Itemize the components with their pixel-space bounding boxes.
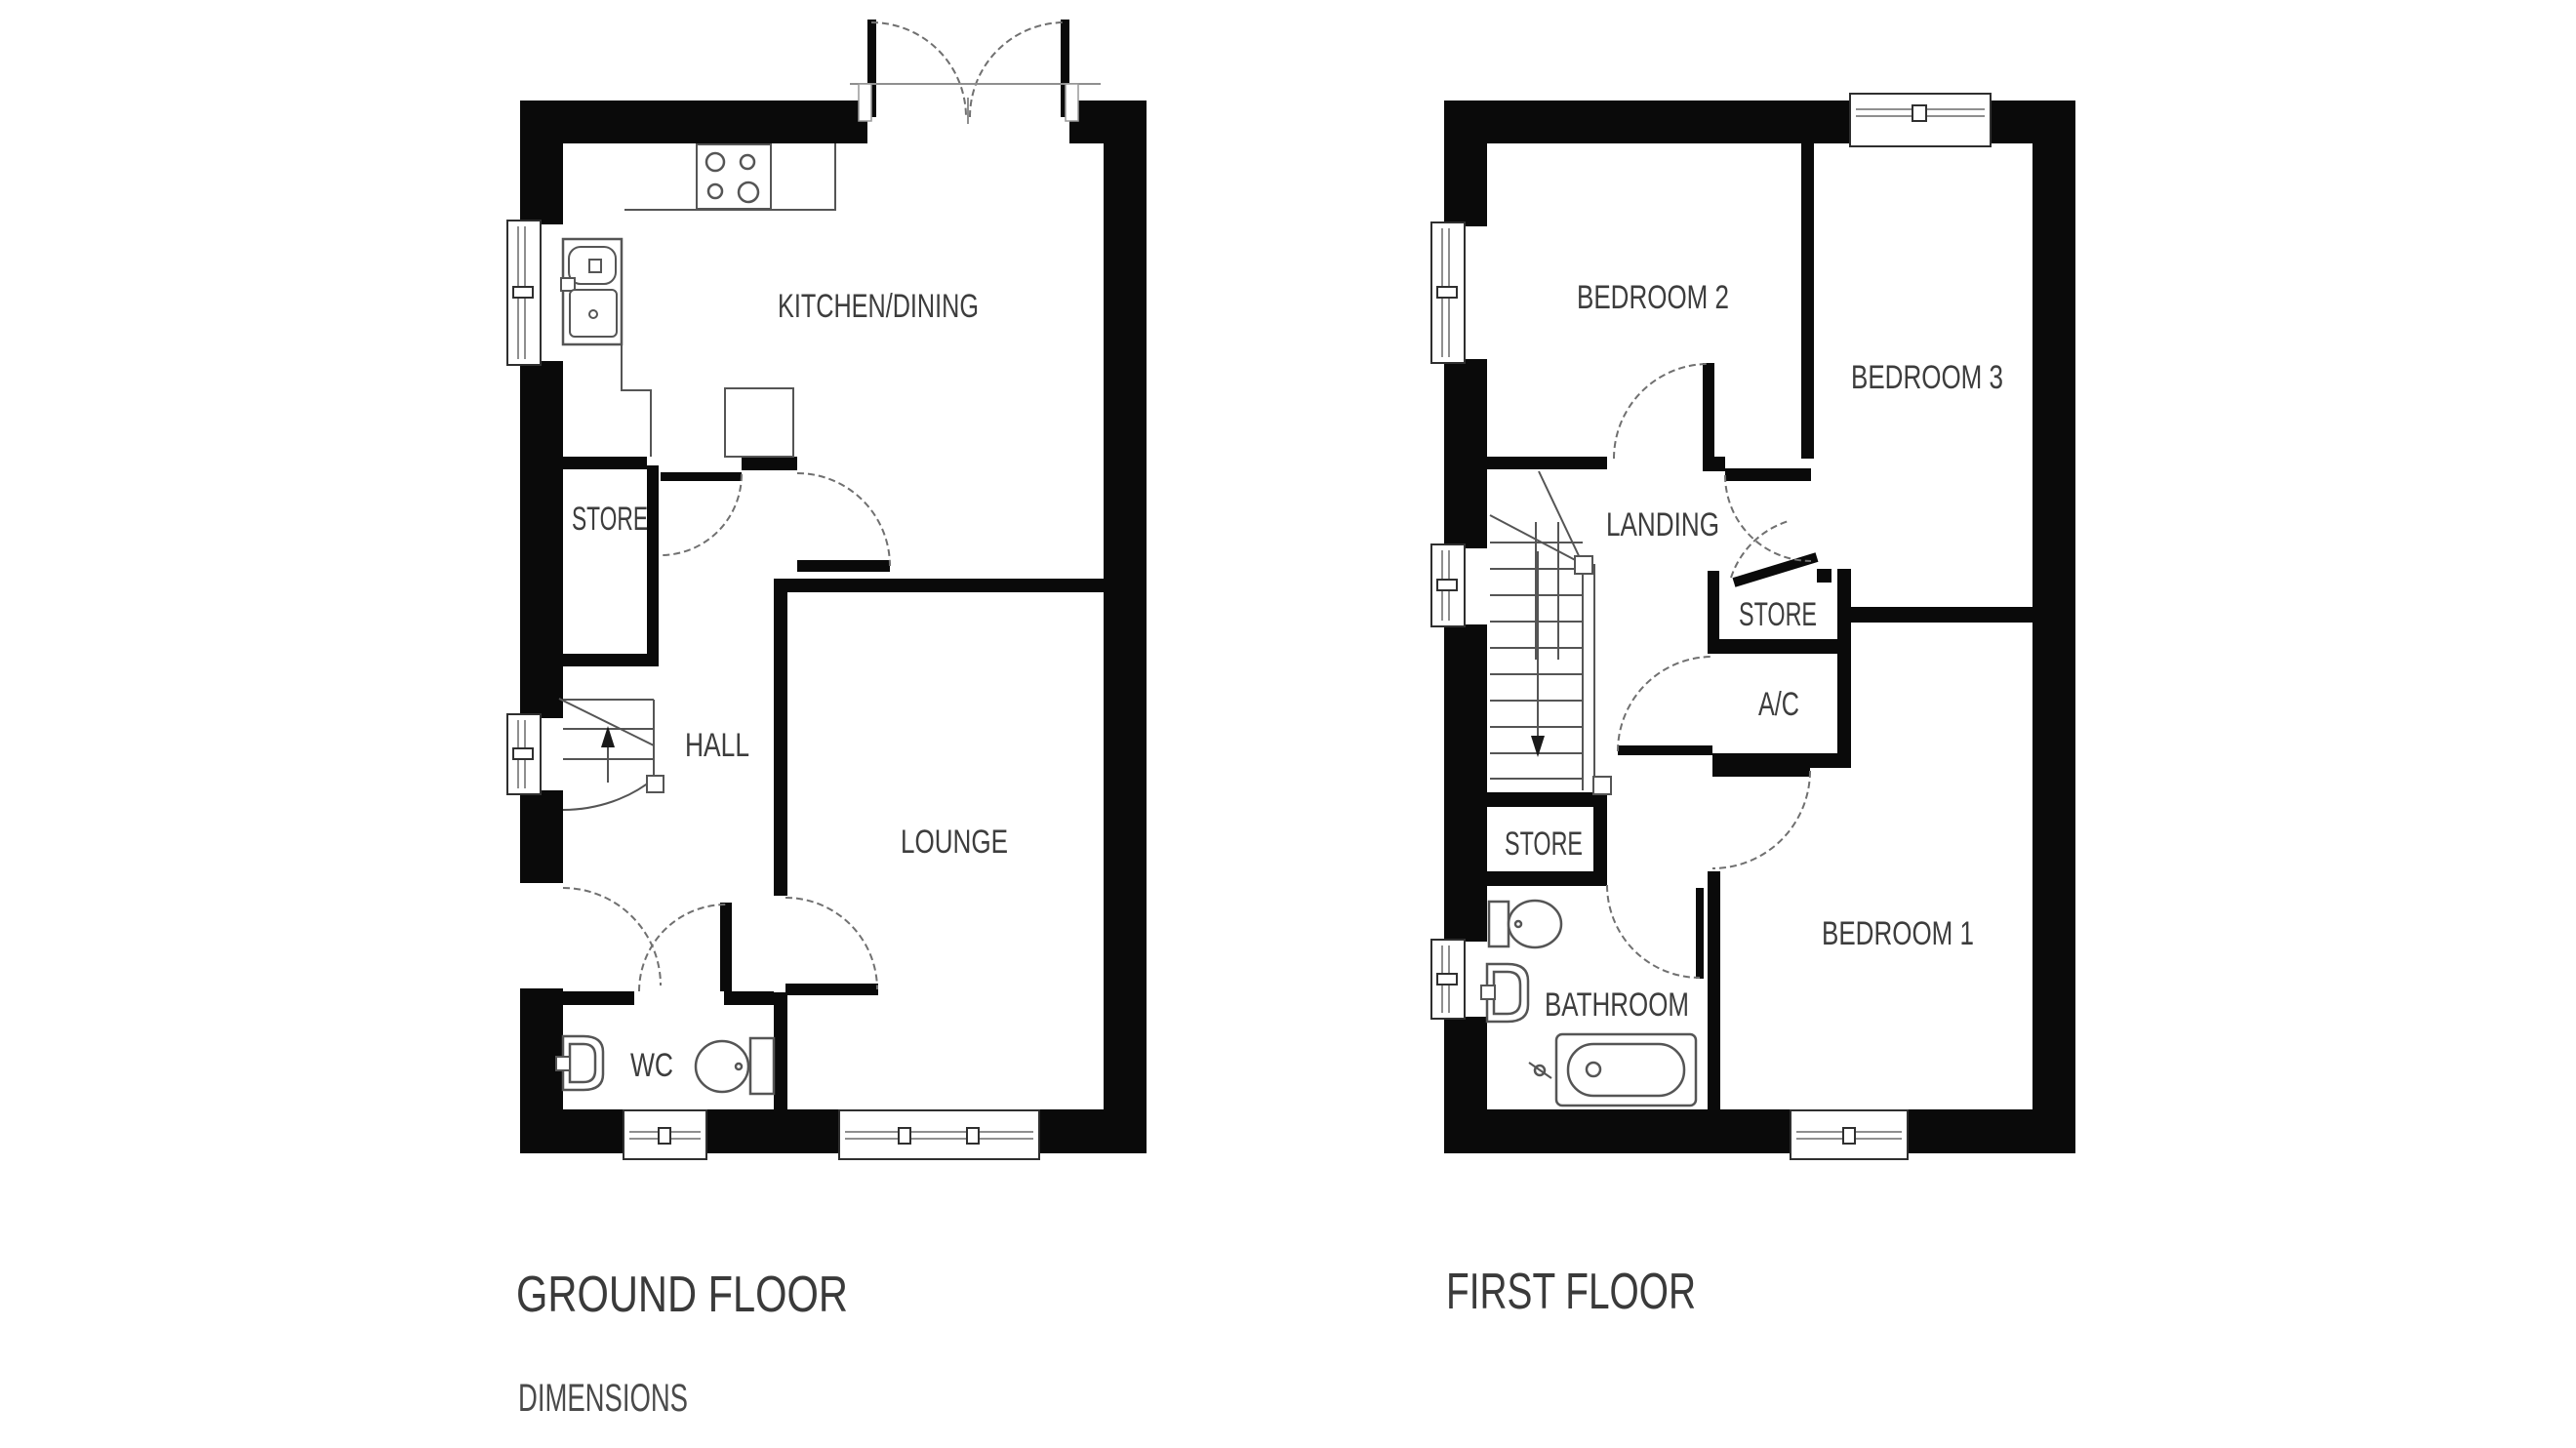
first-floor-plan: BEDROOM 2 BEDROOM 3 LANDING STORE A/C ST…	[1431, 94, 2075, 1159]
room-label-bedroom2: BEDROOM 2	[1577, 279, 1729, 316]
ground-floor-plan: KITCHEN/DINING STORE HALL LOUNGE WC	[507, 20, 1147, 1159]
bathroom-door-leaf	[1696, 888, 1704, 979]
dimensions-caption: DIMENSIONS	[518, 1377, 688, 1420]
front-door-arc	[563, 888, 661, 985]
room-label-landing: LANDING	[1606, 506, 1719, 543]
wall-segment	[724, 991, 774, 1005]
faucet-icon	[556, 1057, 570, 1070]
door-jamb	[1817, 569, 1831, 583]
room-label-bathroom: BATHROOM	[1545, 986, 1689, 1024]
store-door-leaf	[1734, 557, 1817, 583]
bedroom1-door-leaf	[1712, 765, 1810, 777]
window	[839, 1110, 1039, 1159]
door-arc	[1712, 771, 1810, 868]
floorplan-canvas: KITCHEN/DINING STORE HALL LOUNGE WC	[0, 0, 2576, 1448]
wall-segment	[774, 579, 787, 896]
window	[507, 714, 541, 794]
plan-titles: GROUND FLOOR FIRST FLOOR	[516, 1264, 1696, 1323]
window	[1431, 222, 1465, 363]
store-door-leaf	[661, 472, 742, 481]
toilet-flush-dot	[1515, 921, 1521, 927]
door-arc	[1607, 885, 1700, 978]
toilet-cistern	[1489, 902, 1509, 946]
wc-door-leaf	[720, 903, 732, 991]
wall-segment	[1837, 569, 1851, 768]
ground-floor-title: GROUND FLOOR	[516, 1267, 848, 1323]
wall-segment	[647, 478, 659, 654]
newel-post	[1593, 777, 1611, 794]
wall-segment	[556, 991, 634, 1005]
ac-door-leaf	[1618, 745, 1712, 755]
wall-segment	[742, 457, 797, 470]
wall-segment	[556, 654, 659, 666]
wall-segment	[520, 143, 563, 224]
wall-segment	[1104, 101, 1147, 1153]
window	[507, 221, 541, 365]
wall-segment	[1444, 359, 1487, 548]
wall-segment	[1483, 871, 1607, 886]
room-label-store: STORE	[572, 501, 648, 538]
french-door-arc	[871, 22, 966, 117]
french-door-arc	[970, 22, 1065, 117]
wall-segment	[520, 1109, 627, 1153]
faucet-icon	[1481, 985, 1495, 999]
room-label-kitchen-dining: KITCHEN/DINING	[778, 288, 979, 325]
wall-segment	[1444, 1109, 1794, 1153]
hob-icon	[697, 144, 771, 209]
room-label-bedroom1: BEDROOM 1	[1822, 915, 1974, 952]
first-floor-title: FIRST FLOOR	[1446, 1264, 1696, 1320]
door-jamb	[1703, 457, 1725, 471]
kitchen-sink-icon	[561, 239, 622, 344]
window	[1791, 1110, 1908, 1159]
ground-stairs	[559, 699, 664, 810]
wall-segment	[1444, 624, 1487, 942]
door-jamb	[647, 465, 659, 478]
door-arc	[661, 474, 742, 555]
wall-segment	[2033, 101, 2075, 1153]
wall-segment	[1801, 143, 1814, 459]
window	[1431, 544, 1465, 626]
wall-segment	[520, 790, 563, 883]
wall-segment	[556, 457, 647, 469]
appliance-icon	[725, 388, 793, 457]
kitchen-door-leaf	[797, 560, 890, 572]
room-label-store-upper: STORE	[1739, 596, 1817, 633]
door-arc	[1614, 364, 1709, 459]
room-label-bedroom3: BEDROOM 3	[1851, 359, 2003, 396]
wall-segment	[520, 101, 867, 143]
room-label-store-lower: STORE	[1505, 825, 1583, 863]
wall-segment	[1483, 457, 1607, 469]
stair-break-line	[1539, 471, 1583, 564]
door-jamb	[859, 84, 871, 121]
bedroom3-door-leaf	[1725, 468, 1811, 481]
newel-post	[1575, 556, 1592, 574]
lounge-door-leaf	[785, 984, 878, 995]
toilet-cistern	[750, 1038, 774, 1094]
wall-segment	[1444, 101, 1852, 143]
stair-curved-tread	[563, 779, 654, 810]
ground-windows	[507, 221, 1039, 1159]
wall-segment	[1483, 792, 1607, 807]
room-label-lounge: LOUNGE	[901, 824, 1008, 861]
floorplan-page: KITCHEN/DINING STORE HALL LOUNGE WC	[0, 0, 2576, 1448]
door-arc	[1618, 657, 1712, 751]
newel-post	[647, 776, 664, 792]
wall-segment	[774, 579, 1104, 592]
door-arc	[797, 473, 890, 566]
room-label-wc: WC	[630, 1047, 673, 1084]
bedroom2-door-leaf	[1703, 363, 1714, 459]
room-label-hall: HALL	[685, 727, 749, 764]
first-floor-stairs	[1490, 471, 1611, 794]
counter-edge	[622, 239, 651, 457]
window	[1850, 94, 1991, 146]
window	[624, 1110, 706, 1159]
toilet-flush-dot	[736, 1064, 742, 1069]
door-jamb	[1066, 84, 1078, 121]
wall-segment	[1708, 639, 1851, 654]
wall-segment	[1708, 871, 1720, 1109]
wall-segment	[774, 992, 787, 1109]
wall-segment	[703, 1109, 843, 1153]
door-arc	[785, 898, 877, 989]
room-label-ac: A/C	[1758, 686, 1799, 723]
door-arc	[1725, 475, 1811, 561]
wall-segment	[1851, 607, 2033, 623]
interior-walls	[556, 457, 1104, 1109]
wall-segment	[1444, 143, 1487, 226]
window	[1431, 940, 1465, 1019]
